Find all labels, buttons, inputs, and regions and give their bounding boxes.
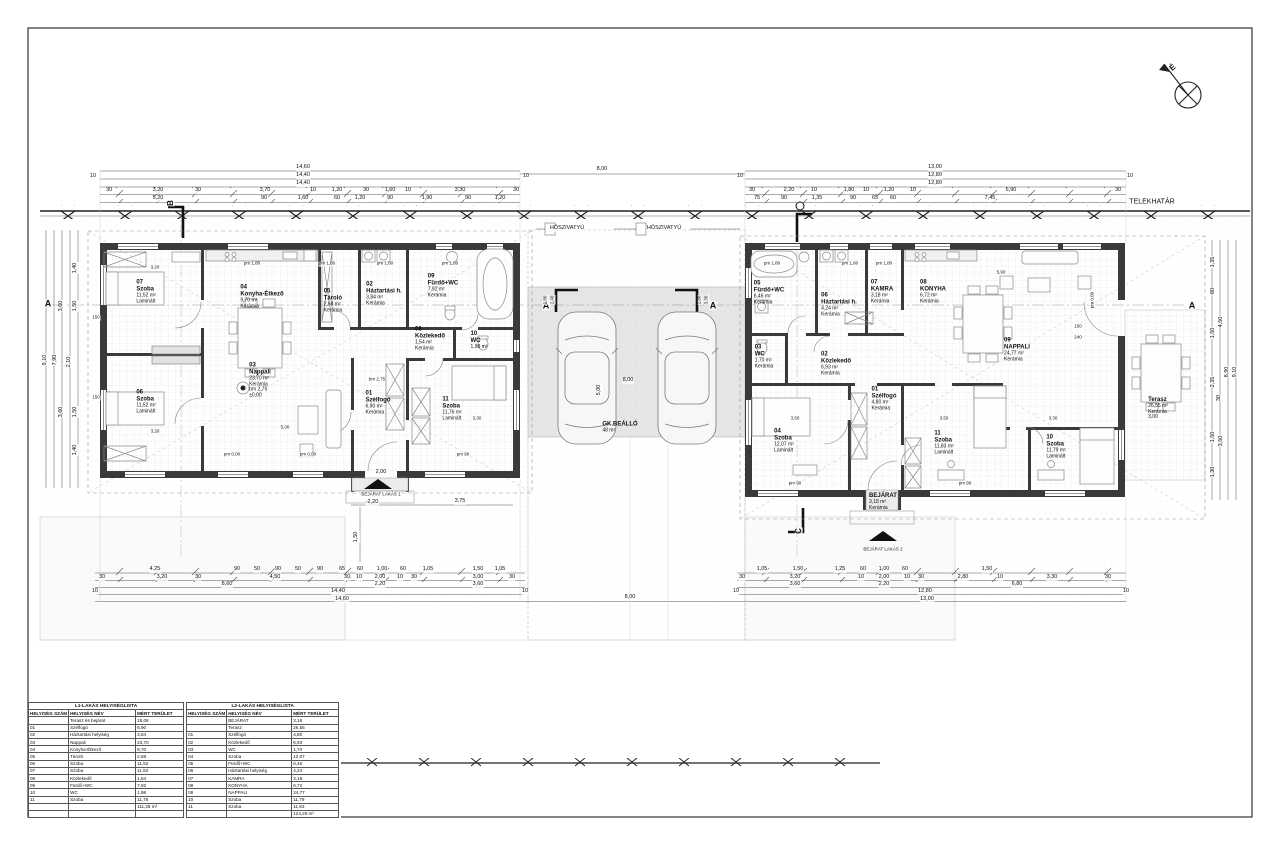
- room-label-line: 01: [872, 386, 897, 393]
- dim-label: 30: [194, 188, 201, 194]
- table-cell: 11: [187, 803, 227, 810]
- dim-label: 30: [1217, 394, 1223, 401]
- dim-label: 10: [732, 589, 739, 595]
- table-cell: 05: [29, 753, 69, 760]
- room-label-line: 10: [471, 331, 488, 338]
- dim-label: 14,40: [296, 181, 311, 187]
- dim-label: pm 90: [456, 453, 470, 458]
- table-row: 09Fürdő+WC7,92: [29, 782, 184, 789]
- dim-label: 1,05: [422, 567, 434, 573]
- table-row: HELYISÉG SZÁMHELYISÉG NÉVMÉRT TERÜLET: [187, 710, 339, 717]
- dim-label: 2,10: [67, 356, 73, 368]
- table-cell: 111,28 m²: [136, 803, 184, 810]
- table-cell: Háztartási helyiség: [227, 767, 292, 774]
- room-b2-terasz: Terasz26,55 m²Kerámia3,00: [1148, 397, 1168, 421]
- dim-label: 1,20: [494, 196, 506, 202]
- dim-label: 1,20: [331, 188, 343, 194]
- dim-label: 2,40: [551, 295, 556, 305]
- table-row: 08Közlekedő1,54: [29, 774, 184, 781]
- table-cell: [187, 717, 227, 724]
- table-cell: Terasz és bejárat: [69, 717, 136, 724]
- dim-label: 90: [464, 196, 471, 202]
- room-label-line: 10: [1046, 434, 1065, 441]
- parking-label: GK.BEÁLLÓ48 m²: [602, 422, 637, 435]
- dim-label: pm 1,80: [763, 262, 780, 267]
- room-b2-02-kozlekedo: 02Közlekedő6,93 m²Kerámia: [821, 351, 851, 376]
- table-row: 04Szoba12,07: [187, 753, 339, 760]
- entrance-label: BEJÁRAT LAKÁS 2: [863, 548, 903, 553]
- dim-label: 3,30: [705, 295, 710, 305]
- dim-label: 6,90: [1005, 188, 1017, 194]
- dim-label: 3,30: [1046, 575, 1058, 581]
- room-label-line: 07: [136, 279, 155, 286]
- table-cell: 02: [29, 731, 69, 738]
- dim-label: 60: [901, 567, 908, 573]
- dim-label: 3,20: [150, 266, 160, 271]
- room-label-line: 07: [871, 279, 893, 286]
- table-row: 11Szoba11,83: [187, 803, 339, 810]
- room-list-tables: L1-LAKÁS HELYISÉGLISTAHELYISÉG SZÁMHELYI…: [28, 702, 341, 818]
- dim-label: 1,50: [73, 406, 79, 418]
- dim-label: pm 0,00: [299, 453, 316, 458]
- table-cell: 11,52: [136, 767, 184, 774]
- dim-label: 10: [522, 174, 529, 180]
- dim-label: 8,60: [221, 582, 233, 588]
- dim-label: 1,20: [883, 188, 895, 194]
- table-cell: Konyha-Étkező: [69, 746, 136, 753]
- dim-label: 9,10: [43, 354, 49, 366]
- table-cell: 7,92: [136, 782, 184, 789]
- dim-label: 2,20: [783, 188, 795, 194]
- room-b2-11-szoba: 11Szoba11,83 m²Laminált: [934, 430, 953, 455]
- dim-label: 2,00: [878, 575, 890, 581]
- table-cell: WC: [69, 789, 136, 796]
- table-cell: 05: [187, 760, 227, 767]
- table-cell: 11,79: [292, 796, 339, 803]
- dim-label: pm 0,00: [1091, 291, 1096, 308]
- table-row: [29, 810, 184, 817]
- table-cell: 03: [187, 746, 227, 753]
- dim-label: 10: [1122, 589, 1129, 595]
- table-row: Terasz és bejárat18,08: [29, 717, 184, 724]
- dim-label: 5,90: [996, 271, 1006, 276]
- table-cell: 04: [29, 746, 69, 753]
- table-cell: 10: [187, 796, 227, 803]
- room-b1-02-haztartasi: 02Háztartási h.3,84 m²Kerámia: [366, 281, 402, 306]
- room-b1-08-kozlekedo: 08Közlekedő1,54 m²Kerámia: [415, 326, 445, 351]
- dim-label: 2,20: [374, 582, 386, 588]
- dim-label: 8,00: [624, 595, 636, 601]
- room-label-line: 04: [774, 428, 794, 435]
- room-label-line: 3,00: [1148, 415, 1168, 421]
- column-header: HELYISÉG NÉV: [227, 710, 292, 717]
- dim-label: 30: [410, 575, 417, 581]
- room-label-line: 09: [1004, 337, 1030, 344]
- heat-pump-label: HŐSZIVATYÚ: [646, 226, 681, 232]
- table-row: 124,29 m²: [187, 810, 339, 817]
- dim-label: 1,50: [354, 531, 360, 543]
- room-label-line: 03: [249, 363, 271, 370]
- table-cell: Szoba: [227, 753, 292, 760]
- room-label-line: 08: [415, 326, 445, 333]
- table-row: HELYISÉG SZÁMHELYISÉG NÉVMÉRT TERÜLET: [29, 710, 184, 717]
- dim-label: 10: [404, 188, 411, 194]
- dim-label: 30: [98, 575, 105, 581]
- table-cell: 3,18: [292, 774, 339, 781]
- table-row: 03WC1,70: [187, 746, 339, 753]
- dim-label: 4,50: [1219, 316, 1225, 328]
- room-b2-09-nappali: 09NAPPALI24,77 m²Kerámia: [1004, 337, 1030, 362]
- dim-label: 3,60: [59, 406, 65, 418]
- north-arrow: [1159, 64, 1201, 108]
- dim-label: 7,90: [53, 354, 59, 366]
- dim-label: 3,50: [1219, 435, 1225, 447]
- table-cell: 24,77: [292, 789, 339, 796]
- dim-label: pm 1,80: [841, 262, 858, 267]
- table-cell: 4,80: [292, 731, 339, 738]
- dim-label: 1,30: [1211, 466, 1217, 478]
- table-cell: 08: [29, 774, 69, 781]
- dim-label: 30: [362, 188, 369, 194]
- dim-label: 1,00: [878, 567, 890, 573]
- dim-label: 10: [736, 174, 743, 180]
- table-title: L2-LAKÁS HELYISÉGLISTA: [187, 703, 339, 710]
- dim-label: 60: [399, 567, 406, 573]
- dim-label: 12,80: [928, 173, 943, 179]
- room-label-line: 02: [366, 281, 402, 288]
- dim-label: 3,60: [789, 582, 801, 588]
- dim-label: 90: [316, 567, 323, 573]
- dim-label: 10: [903, 575, 910, 581]
- table-cell: 3,84: [136, 731, 184, 738]
- dim-label: 10: [1126, 174, 1133, 180]
- room-label-line: 01: [366, 390, 391, 397]
- dim-label: 1,50: [792, 567, 804, 573]
- dim-label: 10: [355, 575, 362, 581]
- room-label-line: Kerámia: [872, 406, 897, 412]
- room-label-line: ±0,00: [249, 394, 271, 400]
- table-cell: Szoba: [227, 803, 292, 810]
- table-row: 09NAPPALI24,77: [187, 789, 339, 796]
- dim-label: 3,20: [150, 430, 160, 435]
- table-cell: [187, 724, 227, 731]
- room-b2-08-konyha: 08KONYHA6,72 m²Kerámia: [920, 279, 946, 304]
- table-cell: 02: [187, 739, 227, 746]
- dim-label: 9,10: [1233, 366, 1239, 378]
- room-b1-03-nappali: 03Nappali23,70 m²Kerámiabm 2,75±0,00: [249, 363, 271, 400]
- table-cell: 3,18: [292, 717, 339, 724]
- table-row: 11Szoba11,76: [29, 796, 184, 803]
- column-header: HELYISÉG SZÁM: [187, 710, 227, 717]
- table-cell: Szoba: [69, 796, 136, 803]
- room-b2-06-haztartasi: 06Háztartási h.4,24 m²Kerámia: [821, 292, 857, 317]
- table-row: 06Szoba11,52: [29, 760, 184, 767]
- column-header: MÉRT TERÜLET: [136, 710, 184, 717]
- dim-label: 30: [738, 575, 745, 581]
- dim-label: 90: [849, 196, 856, 202]
- table-row: 03Nappali23,70: [29, 739, 184, 746]
- dim-label: 65: [338, 567, 345, 573]
- room-label-line: Laminált: [442, 416, 461, 422]
- room-label-line: Kerámia: [240, 304, 283, 310]
- table-cell: [29, 717, 69, 724]
- dim-label: pm 1,80: [875, 262, 892, 267]
- room-b1-07-szoba: 07Szoba11,52 m²Laminált: [136, 279, 155, 304]
- table-cell: 18,08: [136, 717, 184, 724]
- room-label-line: 02: [821, 351, 851, 358]
- dim-label: 80: [1211, 287, 1217, 294]
- room-label-line: 05: [324, 288, 343, 295]
- dim-label: 60: [333, 196, 340, 202]
- dim-label: 30: [343, 575, 350, 581]
- dim-label: 1,25: [834, 567, 846, 573]
- room-label-line: 09: [428, 273, 459, 280]
- room-b1-10-wc: 10WC1,98 m²: [471, 331, 488, 351]
- table-cell: 23,70: [136, 739, 184, 746]
- column-header: HELYISÉG SZÁM: [29, 710, 69, 717]
- table-cell: 6,72: [292, 782, 339, 789]
- table-cell: Fürdő+WC: [69, 782, 136, 789]
- dim-label: 5,00: [597, 384, 603, 396]
- dim-label: 3,50: [790, 417, 800, 422]
- table-cell: [69, 803, 136, 810]
- dim-label: pm 90: [958, 482, 972, 487]
- table-cell: Fürdő+WC: [227, 760, 292, 767]
- table-cell: 1,54: [136, 774, 184, 781]
- dim-label: 10: [857, 575, 864, 581]
- table-cell: WC: [227, 746, 292, 753]
- dim-label: 1,60: [297, 196, 309, 202]
- table-cell: [187, 810, 227, 817]
- table-row: 07KAMRA3,18: [187, 774, 339, 781]
- dim-label: 4,25: [149, 567, 161, 573]
- table-cell: 06: [29, 760, 69, 767]
- dim-label: 10: [91, 589, 98, 595]
- dim-label: 2,80: [698, 295, 703, 305]
- table-cell: 06: [187, 767, 227, 774]
- room-label-line: 06: [821, 292, 857, 299]
- dim-label: 90: [260, 196, 267, 202]
- room-label-line: 03: [755, 344, 774, 351]
- section-marker-a: A: [709, 301, 717, 310]
- section-marker-b: B: [167, 200, 175, 207]
- dim-label: 1,35: [1211, 256, 1217, 268]
- dim-label: 3,30: [454, 188, 466, 194]
- heat-pump-label: HŐSZIVATYÚ: [549, 226, 584, 232]
- table-cell: 11,76: [136, 796, 184, 803]
- dim-label: 30: [748, 188, 755, 194]
- dim-label: 10: [862, 188, 869, 194]
- table-cell: 4,24: [292, 767, 339, 774]
- room-list-table-l1: L1-LAKÁS HELYISÉGLISTAHELYISÉG SZÁMHELYI…: [28, 702, 184, 818]
- table-row: 06Háztartási helyiség4,24: [187, 767, 339, 774]
- dim-label: 1,40: [73, 262, 79, 274]
- table-row: 05Tároló2,68: [29, 753, 184, 760]
- table-row: 02Közlekedő6,93: [187, 739, 339, 746]
- table-cell: Terasz: [227, 724, 292, 731]
- room-label-line: Kerámia: [920, 299, 946, 305]
- room-label-line: Kerámia: [821, 312, 857, 318]
- table-row: Terasz26,55: [187, 724, 339, 731]
- dim-label: 6,80: [1011, 582, 1023, 588]
- dim-label: 13,00: [920, 597, 935, 603]
- dim-label: 50: [294, 567, 301, 573]
- table-cell: 01: [29, 724, 69, 731]
- room-b2-05-furdo: 05Fürdő+WC6,46 m²Kerámia: [754, 280, 785, 305]
- dim-label: 3,60: [59, 300, 65, 312]
- room-b1-11-szoba: 11Szoba11,76 m²Laminált: [442, 396, 461, 421]
- table-row: 111,28 m²: [29, 803, 184, 810]
- dim-label: 5,00: [280, 426, 290, 431]
- table-cell: 6,93: [292, 739, 339, 746]
- table-cell: 6,46: [292, 760, 339, 767]
- dim-label: 1,20: [354, 196, 366, 202]
- room-label-line: 04: [240, 284, 283, 291]
- section-marker-c: C: [795, 528, 803, 535]
- table-cell: [69, 810, 136, 817]
- room-list-table-l2: L2-LAKÁS HELYISÉGLISTAHELYISÉG SZÁMHELYI…: [186, 702, 339, 818]
- table-cell: KAMRA: [227, 774, 292, 781]
- dim-label: 2,00: [374, 575, 386, 581]
- table-cell: 12,07: [292, 753, 339, 760]
- room-b1-01-szelfogo: 01Szélfogó6,90 m²Kerámia: [366, 390, 391, 415]
- table-cell: 11: [29, 796, 69, 803]
- dim-label: 90: [386, 196, 393, 202]
- dim-label: 30: [1114, 188, 1121, 194]
- dim-label: 3,00: [472, 575, 484, 581]
- table-cell: Közlekedő: [69, 774, 136, 781]
- table-cell: Szoba: [227, 796, 292, 803]
- dim-label: 150: [92, 316, 101, 321]
- dim-label: 10: [396, 575, 403, 581]
- dim-label: 1,80: [843, 188, 855, 194]
- table-cell: BEJÁRAT: [227, 717, 292, 724]
- table-cell: 04: [187, 753, 227, 760]
- table-cell: Szélfogó: [69, 724, 136, 731]
- dim-label: 8,00: [622, 378, 634, 384]
- dim-label: 5,20: [152, 196, 164, 202]
- section-marker-a: A: [1188, 301, 1196, 310]
- room-label-line: Kerámia: [821, 371, 851, 377]
- table-cell: 09: [29, 782, 69, 789]
- dim-label: 3,75: [454, 499, 466, 505]
- room-label-line: 1,98 m²: [471, 345, 488, 351]
- table-cell: 1,70: [292, 746, 339, 753]
- dim-label: 30: [917, 575, 924, 581]
- dim-label: 90: [233, 567, 240, 573]
- column-header: HELYISÉG NÉV: [69, 710, 136, 717]
- room-b1-04-konyha: 04Konyha-Étkező9,70 m²Kerámia: [240, 284, 283, 309]
- table-cell: 07: [187, 774, 227, 781]
- room-b2-01-szelfogo: 01Szélfogó4,80 m²Kerámia: [872, 386, 897, 411]
- room-label-line: 48 m²: [602, 429, 637, 435]
- dim-label: 2,80: [544, 295, 549, 305]
- table-cell: [29, 803, 69, 810]
- entrance-label: BEJÁRAT LAKÁS 1: [361, 493, 401, 498]
- dim-label: 60: [859, 567, 866, 573]
- table-row: 07Szoba11,52: [29, 767, 184, 774]
- dim-label: 10: [996, 575, 1003, 581]
- dim-label: 1,90: [421, 196, 433, 202]
- table-cell: Szélfogó: [227, 731, 292, 738]
- dim-label: 8,90: [1225, 366, 1231, 378]
- room-b2-10-szoba: 10Szoba11,79 m²Laminált: [1046, 434, 1065, 459]
- dim-label: 2,00: [375, 470, 387, 476]
- dim-label: 150: [92, 396, 101, 401]
- column-header: MÉRT TERÜLET: [292, 710, 339, 717]
- table-cell: 11,83: [292, 803, 339, 810]
- dim-label: 150: [1074, 325, 1083, 330]
- dim-label: 30: [508, 575, 515, 581]
- table-cell: 09: [187, 789, 227, 796]
- dim-label: 14,60: [335, 597, 350, 603]
- section-marker-a: A: [44, 299, 52, 308]
- room-label-line: Kerámia: [869, 505, 897, 511]
- room-label-line: Laminált: [136, 299, 155, 305]
- dim-label: 1,50: [1211, 327, 1217, 339]
- dim-label: pm 1,80: [376, 262, 393, 267]
- dim-label: 10: [909, 188, 916, 194]
- table-cell: 2,68: [136, 753, 184, 760]
- table-row: 08KONYHA6,72: [187, 782, 339, 789]
- table-cell: 01: [187, 731, 227, 738]
- table-cell: Szoba: [69, 767, 136, 774]
- table-cell: NAPPALI: [227, 789, 292, 796]
- room-label-line: Kerámia: [324, 308, 343, 314]
- table-cell: KONYHA: [227, 782, 292, 789]
- room-label-line: Kerámia: [366, 301, 402, 307]
- table-cell: [29, 810, 69, 817]
- dim-label: 2,20: [878, 582, 890, 588]
- room-b2-bejarat: BEJÁRAT3,18 m²Kerámia: [869, 493, 897, 511]
- telekhatar-label: TELEKHATÁR: [1129, 198, 1175, 205]
- dim-label: 3,20: [152, 188, 164, 194]
- room-label-line: 11: [442, 396, 461, 403]
- dim-label: 1,40: [73, 444, 79, 456]
- table-row: 01Szélfogó6,90: [29, 724, 184, 731]
- dim-label: 14,40: [331, 589, 346, 595]
- dim-label: 60: [889, 196, 896, 202]
- room-b2-03-wc: 03WC1,70 m²Kerámia: [755, 344, 774, 369]
- table-cell: 07: [29, 767, 69, 774]
- dim-label: 30: [512, 188, 519, 194]
- room-b1-06-szoba: 06Szoba11,52 m²Laminált: [136, 389, 155, 414]
- dim-label: 1,50: [472, 567, 484, 573]
- table-cell: Közlekedő: [227, 739, 292, 746]
- room-b2-04-szoba: 04Szoba12,07 m²Laminált: [774, 428, 794, 453]
- dim-label: pm 1,80: [243, 262, 260, 267]
- dim-label: 3,20: [156, 575, 168, 581]
- room-b2-07-kamra: 07KAMRA3,18 m²Kerámia: [871, 279, 893, 304]
- dim-label: 60: [356, 567, 363, 573]
- dim-label: 12,80: [918, 589, 933, 595]
- dim-label: 2,80: [957, 575, 969, 581]
- dim-label: 7,45: [984, 196, 996, 202]
- room-label-line: 06: [136, 389, 155, 396]
- dim-label: 4,50: [269, 575, 281, 581]
- room-label-line: 11: [934, 430, 953, 437]
- dim-label: 50: [253, 567, 260, 573]
- room-label-line: Kerámia: [754, 300, 785, 306]
- table-row: 10Szoba11,79: [187, 796, 339, 803]
- table-cell: 10: [29, 789, 69, 796]
- table-row: BEJÁRAT3,18: [187, 717, 339, 724]
- dim-label: 65: [871, 196, 878, 202]
- dim-label: 14,60: [296, 165, 311, 171]
- room-label-line: Laminált: [934, 450, 953, 456]
- dim-label: 30: [105, 188, 112, 194]
- dim-label: 1,35: [811, 196, 823, 202]
